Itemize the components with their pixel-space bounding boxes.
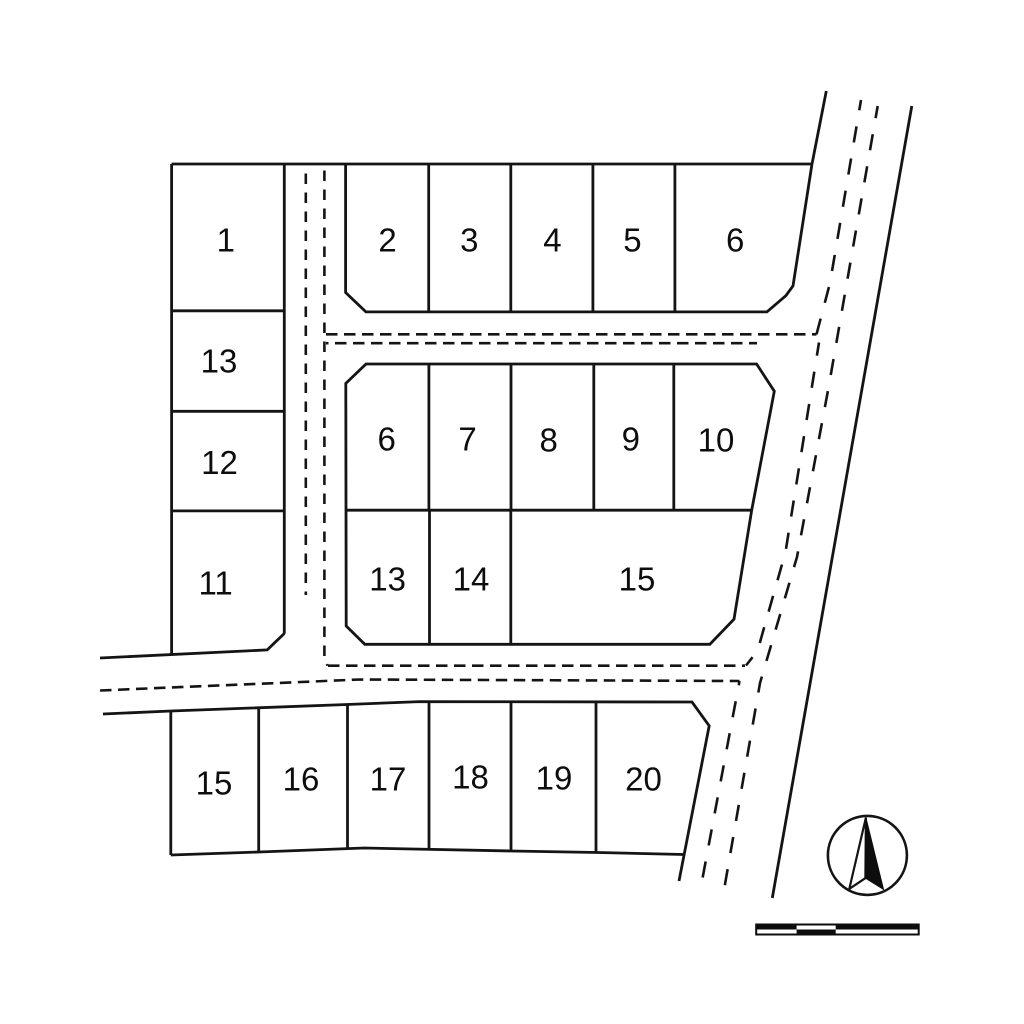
svg-text:6: 6 <box>726 222 744 259</box>
svg-text:19: 19 <box>536 760 573 797</box>
svg-text:4: 4 <box>543 222 561 259</box>
svg-text:9: 9 <box>622 421 640 458</box>
svg-text:8: 8 <box>540 422 558 459</box>
svg-text:3: 3 <box>460 222 478 259</box>
svg-text:13: 13 <box>369 561 406 598</box>
svg-text:10: 10 <box>698 422 735 459</box>
svg-text:2: 2 <box>378 222 396 259</box>
svg-text:11: 11 <box>198 565 232 602</box>
svg-text:18: 18 <box>452 759 489 796</box>
svg-text:15: 15 <box>196 765 233 802</box>
svg-text:17: 17 <box>370 761 407 798</box>
svg-text:1: 1 <box>217 222 235 259</box>
svg-text:20: 20 <box>625 761 662 798</box>
svg-text:16: 16 <box>283 761 320 798</box>
svg-text:5: 5 <box>623 222 641 259</box>
svg-text:7: 7 <box>458 421 476 458</box>
svg-text:6: 6 <box>378 421 396 458</box>
svg-text:14: 14 <box>453 561 490 598</box>
svg-text:13: 13 <box>201 343 238 380</box>
svg-text:12: 12 <box>201 444 238 481</box>
svg-text:15: 15 <box>619 561 656 598</box>
